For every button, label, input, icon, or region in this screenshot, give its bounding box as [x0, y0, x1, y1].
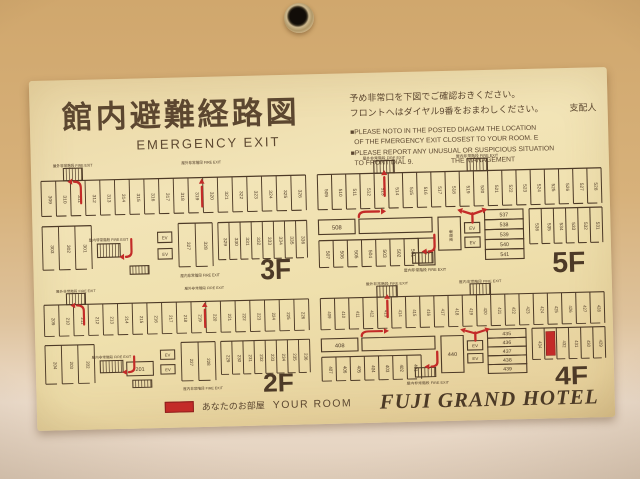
- svg-text:227: 227: [189, 359, 194, 367]
- exit-arrow: [424, 352, 438, 370]
- svg-text:221: 221: [227, 314, 232, 322]
- svg-text:EV: EV: [469, 226, 475, 231]
- svg-text:526: 526: [565, 183, 570, 191]
- svg-text:333: 333: [266, 237, 272, 246]
- exit-arrow: [122, 356, 135, 375]
- svg-text:326: 326: [297, 190, 303, 199]
- svg-text:404: 404: [371, 365, 376, 373]
- svg-text:3F: 3F: [260, 253, 292, 286]
- svg-text:屋内非常階段 FIRE EXIT: 屋内非常階段 FIRE EXIT: [180, 272, 220, 278]
- svg-text:427: 427: [582, 305, 587, 313]
- svg-text:303: 303: [49, 245, 55, 254]
- floor-label: 5F: [552, 246, 586, 279]
- svg-text:429: 429: [598, 340, 603, 348]
- floor-plan-3f: 屋外非常階段 FIRE EXIT屋外非常階段 FIRE EXIT30931031…: [35, 156, 314, 289]
- svg-text:511: 511: [352, 189, 357, 197]
- sign-title-jp: 館内避難経路図: [61, 86, 312, 137]
- svg-text:406: 406: [342, 366, 347, 374]
- svg-text:541: 541: [500, 252, 509, 258]
- svg-text:屋内非常階段 FIRE EXIT: 屋内非常階段 FIRE EXIT: [407, 380, 450, 386]
- svg-text:屋内非常階段 FIRE EXIT: 屋内非常階段 FIRE EXIT: [89, 237, 129, 243]
- svg-text:222: 222: [242, 313, 247, 321]
- svg-text:屋外非常階段 FIRE EXIT: 屋外非常階段 FIRE EXIT: [181, 159, 221, 165]
- svg-text:218: 218: [183, 315, 188, 323]
- svg-text:430: 430: [586, 340, 591, 348]
- svg-text:415: 415: [412, 309, 417, 317]
- svg-text:428: 428: [596, 305, 601, 313]
- svg-text:217: 217: [168, 315, 173, 323]
- svg-text:EV: EV: [165, 352, 171, 357]
- svg-text:515: 515: [409, 187, 414, 195]
- svg-text:315: 315: [135, 193, 141, 202]
- floor-plan-2f: 屋外非常階段 FIRE EXIT屋外非常階段 FIRE EXIT20921021…: [38, 282, 317, 401]
- svg-text:538: 538: [500, 222, 509, 228]
- svg-text:518: 518: [451, 186, 456, 194]
- svg-text:EV: EV: [470, 240, 476, 245]
- svg-text:235: 235: [292, 353, 297, 361]
- svg-text:321: 321: [223, 191, 229, 200]
- svg-text:421: 421: [497, 307, 502, 315]
- svg-text:220: 220: [212, 314, 217, 322]
- svg-text:405: 405: [356, 366, 361, 374]
- svg-text:309: 309: [47, 196, 53, 205]
- svg-text:2F: 2F: [263, 367, 295, 397]
- svg-text:233: 233: [270, 354, 275, 362]
- svg-text:527: 527: [579, 183, 584, 191]
- svg-text:314: 314: [120, 194, 126, 203]
- svg-text:屋内非常階段 FIRE EXIT: 屋内非常階段 FIRE EXIT: [92, 354, 133, 360]
- svg-text:216: 216: [154, 315, 159, 323]
- svg-text:419: 419: [469, 308, 474, 316]
- svg-text:402: 402: [399, 364, 404, 372]
- svg-text:533: 533: [571, 222, 576, 230]
- svg-text:436: 436: [502, 340, 511, 346]
- svg-text:228: 228: [206, 358, 211, 366]
- svg-text:203: 203: [69, 362, 74, 370]
- svg-text:408: 408: [335, 343, 345, 349]
- notice-jp: 予め非常口を下図でご確認おきください。 フロントへはダイヤル9番をおまわしくださ…: [349, 85, 596, 121]
- svg-text:521: 521: [494, 185, 499, 193]
- your-room-marker: [546, 331, 556, 355]
- svg-text:EV: EV: [472, 343, 478, 348]
- svg-text:437: 437: [503, 349, 512, 355]
- svg-text:EV: EV: [165, 367, 171, 372]
- svg-text:204: 204: [53, 362, 58, 370]
- exit-arrow: [199, 178, 205, 206]
- svg-text:434: 434: [537, 341, 542, 349]
- svg-text:213: 213: [109, 316, 114, 324]
- svg-text:屋内非常階段 FIRE EXIT: 屋内非常階段 FIRE EXIT: [459, 278, 502, 284]
- svg-text:439: 439: [503, 366, 512, 372]
- svg-text:322: 322: [238, 191, 244, 200]
- svg-text:212: 212: [95, 317, 100, 325]
- svg-text:414: 414: [398, 310, 403, 318]
- legend-jp: あなたのお部屋: [202, 398, 265, 413]
- floor-plans: 屋外非常階段 FIRE EXIT屋外非常階段 FIRE EXIT30931031…: [35, 149, 613, 401]
- svg-text:318: 318: [179, 192, 185, 201]
- notice-signer: 支配人: [569, 100, 596, 115]
- svg-text:330: 330: [233, 238, 239, 247]
- svg-text:320: 320: [208, 192, 214, 201]
- svg-text:319: 319: [194, 192, 200, 201]
- svg-text:502: 502: [395, 249, 401, 258]
- svg-text:523: 523: [522, 184, 527, 192]
- svg-text:534: 534: [559, 223, 564, 231]
- floor-label: 3F: [260, 253, 292, 286]
- svg-text:214: 214: [124, 316, 129, 324]
- svg-text:334: 334: [277, 236, 283, 245]
- svg-text:301: 301: [82, 244, 88, 253]
- svg-text:327: 327: [185, 242, 191, 251]
- svg-text:336: 336: [300, 236, 306, 245]
- svg-text:屋内非常階段 FIRE EXIT: 屋内非常階段 FIRE EXIT: [183, 385, 224, 391]
- svg-text:225: 225: [286, 312, 291, 320]
- svg-text:432: 432: [562, 340, 567, 348]
- svg-text:236: 236: [303, 353, 308, 361]
- svg-text:507: 507: [324, 251, 330, 260]
- svg-text:435: 435: [502, 331, 511, 337]
- svg-text:540: 540: [500, 242, 509, 248]
- svg-text:423: 423: [525, 306, 530, 314]
- svg-text:屋外非常階段 FIRE EXIT: 屋外非常階段 FIRE EXIT: [366, 280, 409, 286]
- svg-text:524: 524: [537, 184, 542, 192]
- svg-text:516: 516: [423, 187, 428, 195]
- svg-text:424: 424: [539, 306, 544, 314]
- floor-plan-4f: 屋外非常階段 FIRE EXIT屋内非常階段 FIRE EXIT40941041…: [314, 275, 613, 394]
- svg-text:505: 505: [353, 250, 359, 259]
- photo-scene: 館内避難経路図 EMERGENCY EXIT 予め非常口を下図でご確認おきくださ…: [0, 0, 640, 479]
- emergency-exit-sign: 館内避難経路図 EMERGENCY EXIT 予め非常口を下図でご確認おきくださ…: [29, 67, 615, 431]
- svg-text:512: 512: [366, 188, 371, 196]
- svg-text:528: 528: [593, 182, 598, 190]
- svg-text:屋外非常階段 FIRE EXIT: 屋外非常階段 FIRE EXIT: [363, 155, 406, 161]
- svg-text:537: 537: [499, 212, 508, 218]
- sign-title-en: EMERGENCY EXIT: [136, 133, 312, 152]
- svg-text:335: 335: [288, 236, 294, 245]
- floor-plan-5f: 屋外非常階段 FIRE EXIT屋内非常階段 FIRE EXIT50951051…: [311, 149, 610, 282]
- exit-arrow: [456, 206, 488, 223]
- svg-text:209: 209: [51, 318, 56, 326]
- svg-text:310: 310: [61, 195, 67, 204]
- exit-arrow: [362, 328, 390, 336]
- svg-text:506: 506: [338, 250, 344, 259]
- svg-text:409: 409: [327, 311, 332, 319]
- svg-text:事務室: 事務室: [448, 230, 453, 242]
- svg-text:202: 202: [85, 361, 90, 369]
- svg-text:536: 536: [534, 223, 539, 231]
- svg-text:509: 509: [324, 189, 329, 197]
- your-room-swatch: [165, 401, 194, 413]
- svg-text:508: 508: [332, 225, 343, 231]
- svg-text:234: 234: [281, 354, 286, 362]
- svg-text:317: 317: [164, 193, 170, 202]
- hotel-name: FUJI GRAND HOTEL: [379, 384, 599, 414]
- svg-text:EV: EV: [162, 252, 168, 257]
- svg-text:519: 519: [466, 186, 471, 194]
- exit-arrow: [119, 239, 132, 260]
- legend-en: YOUR ROOM: [273, 397, 353, 411]
- svg-text:屋外非常階段 FIRE EXIT: 屋外非常階段 FIRE EXIT: [56, 288, 97, 294]
- svg-text:312: 312: [91, 195, 97, 204]
- exit-arrow: [459, 326, 491, 341]
- svg-text:316: 316: [150, 193, 156, 202]
- svg-text:532: 532: [583, 222, 588, 230]
- svg-text:5F: 5F: [552, 246, 586, 279]
- exit-arrow: [359, 208, 387, 217]
- svg-text:EV: EV: [162, 235, 168, 240]
- svg-text:514: 514: [395, 187, 400, 195]
- svg-text:230: 230: [237, 355, 242, 363]
- svg-text:323: 323: [253, 191, 259, 200]
- sign-title-block: 館内避難経路図 EMERGENCY EXIT: [61, 86, 312, 154]
- svg-text:403: 403: [385, 365, 390, 373]
- svg-text:438: 438: [503, 358, 512, 364]
- svg-text:422: 422: [511, 307, 516, 315]
- svg-text:520: 520: [480, 185, 485, 193]
- svg-text:215: 215: [139, 316, 144, 324]
- svg-text:416: 416: [426, 309, 431, 317]
- svg-text:210: 210: [65, 318, 70, 326]
- peephole: [284, 3, 314, 33]
- svg-text:412: 412: [369, 310, 374, 318]
- svg-text:324: 324: [267, 190, 273, 199]
- svg-text:522: 522: [508, 185, 513, 193]
- svg-text:531: 531: [595, 222, 600, 230]
- svg-text:223: 223: [256, 313, 261, 321]
- svg-text:425: 425: [554, 306, 559, 314]
- svg-text:201: 201: [135, 367, 144, 373]
- svg-text:328: 328: [202, 241, 208, 250]
- svg-text:517: 517: [437, 186, 442, 194]
- svg-text:226: 226: [300, 312, 305, 320]
- svg-text:屋外非常階段 FIRE EXIT: 屋外非常階段 FIRE EXIT: [53, 162, 93, 168]
- svg-text:231: 231: [248, 354, 253, 362]
- svg-text:510: 510: [338, 189, 343, 197]
- svg-text:232: 232: [259, 354, 264, 362]
- svg-text:329: 329: [222, 238, 228, 247]
- svg-text:431: 431: [574, 340, 579, 348]
- svg-text:411: 411: [355, 311, 360, 318]
- svg-text:504: 504: [367, 250, 373, 259]
- svg-text:219: 219: [198, 314, 203, 322]
- svg-text:332: 332: [255, 237, 261, 246]
- svg-text:417: 417: [440, 309, 445, 317]
- svg-text:440: 440: [448, 352, 458, 358]
- svg-text:229: 229: [226, 355, 231, 363]
- svg-text:屋内非常階段 FIRE EXIT: 屋内非常階段 FIRE EXIT: [404, 267, 447, 273]
- svg-text:407: 407: [328, 366, 333, 374]
- svg-text:539: 539: [500, 232, 509, 238]
- svg-text:503: 503: [381, 249, 387, 258]
- svg-text:屋外非常階段 FIRE EXIT: 屋外非常階段 FIRE EXIT: [184, 285, 225, 291]
- svg-text:325: 325: [282, 190, 288, 199]
- svg-text:313: 313: [106, 194, 112, 203]
- svg-text:EV: EV: [472, 356, 478, 361]
- svg-text:535: 535: [547, 223, 552, 231]
- svg-text:418: 418: [454, 308, 459, 316]
- svg-text:224: 224: [271, 313, 276, 321]
- floor-label: 2F: [263, 367, 295, 397]
- svg-text:410: 410: [341, 311, 346, 319]
- svg-text:331: 331: [244, 237, 250, 246]
- svg-text:525: 525: [551, 184, 556, 192]
- svg-text:屋内非常階段 FIRE EXIT: 屋内非常階段 FIRE EXIT: [456, 153, 499, 159]
- svg-text:426: 426: [568, 305, 573, 313]
- svg-text:420: 420: [483, 307, 488, 315]
- your-room-legend: あなたのお部屋 YOUR ROOM: [165, 396, 353, 414]
- svg-text:302: 302: [65, 245, 71, 254]
